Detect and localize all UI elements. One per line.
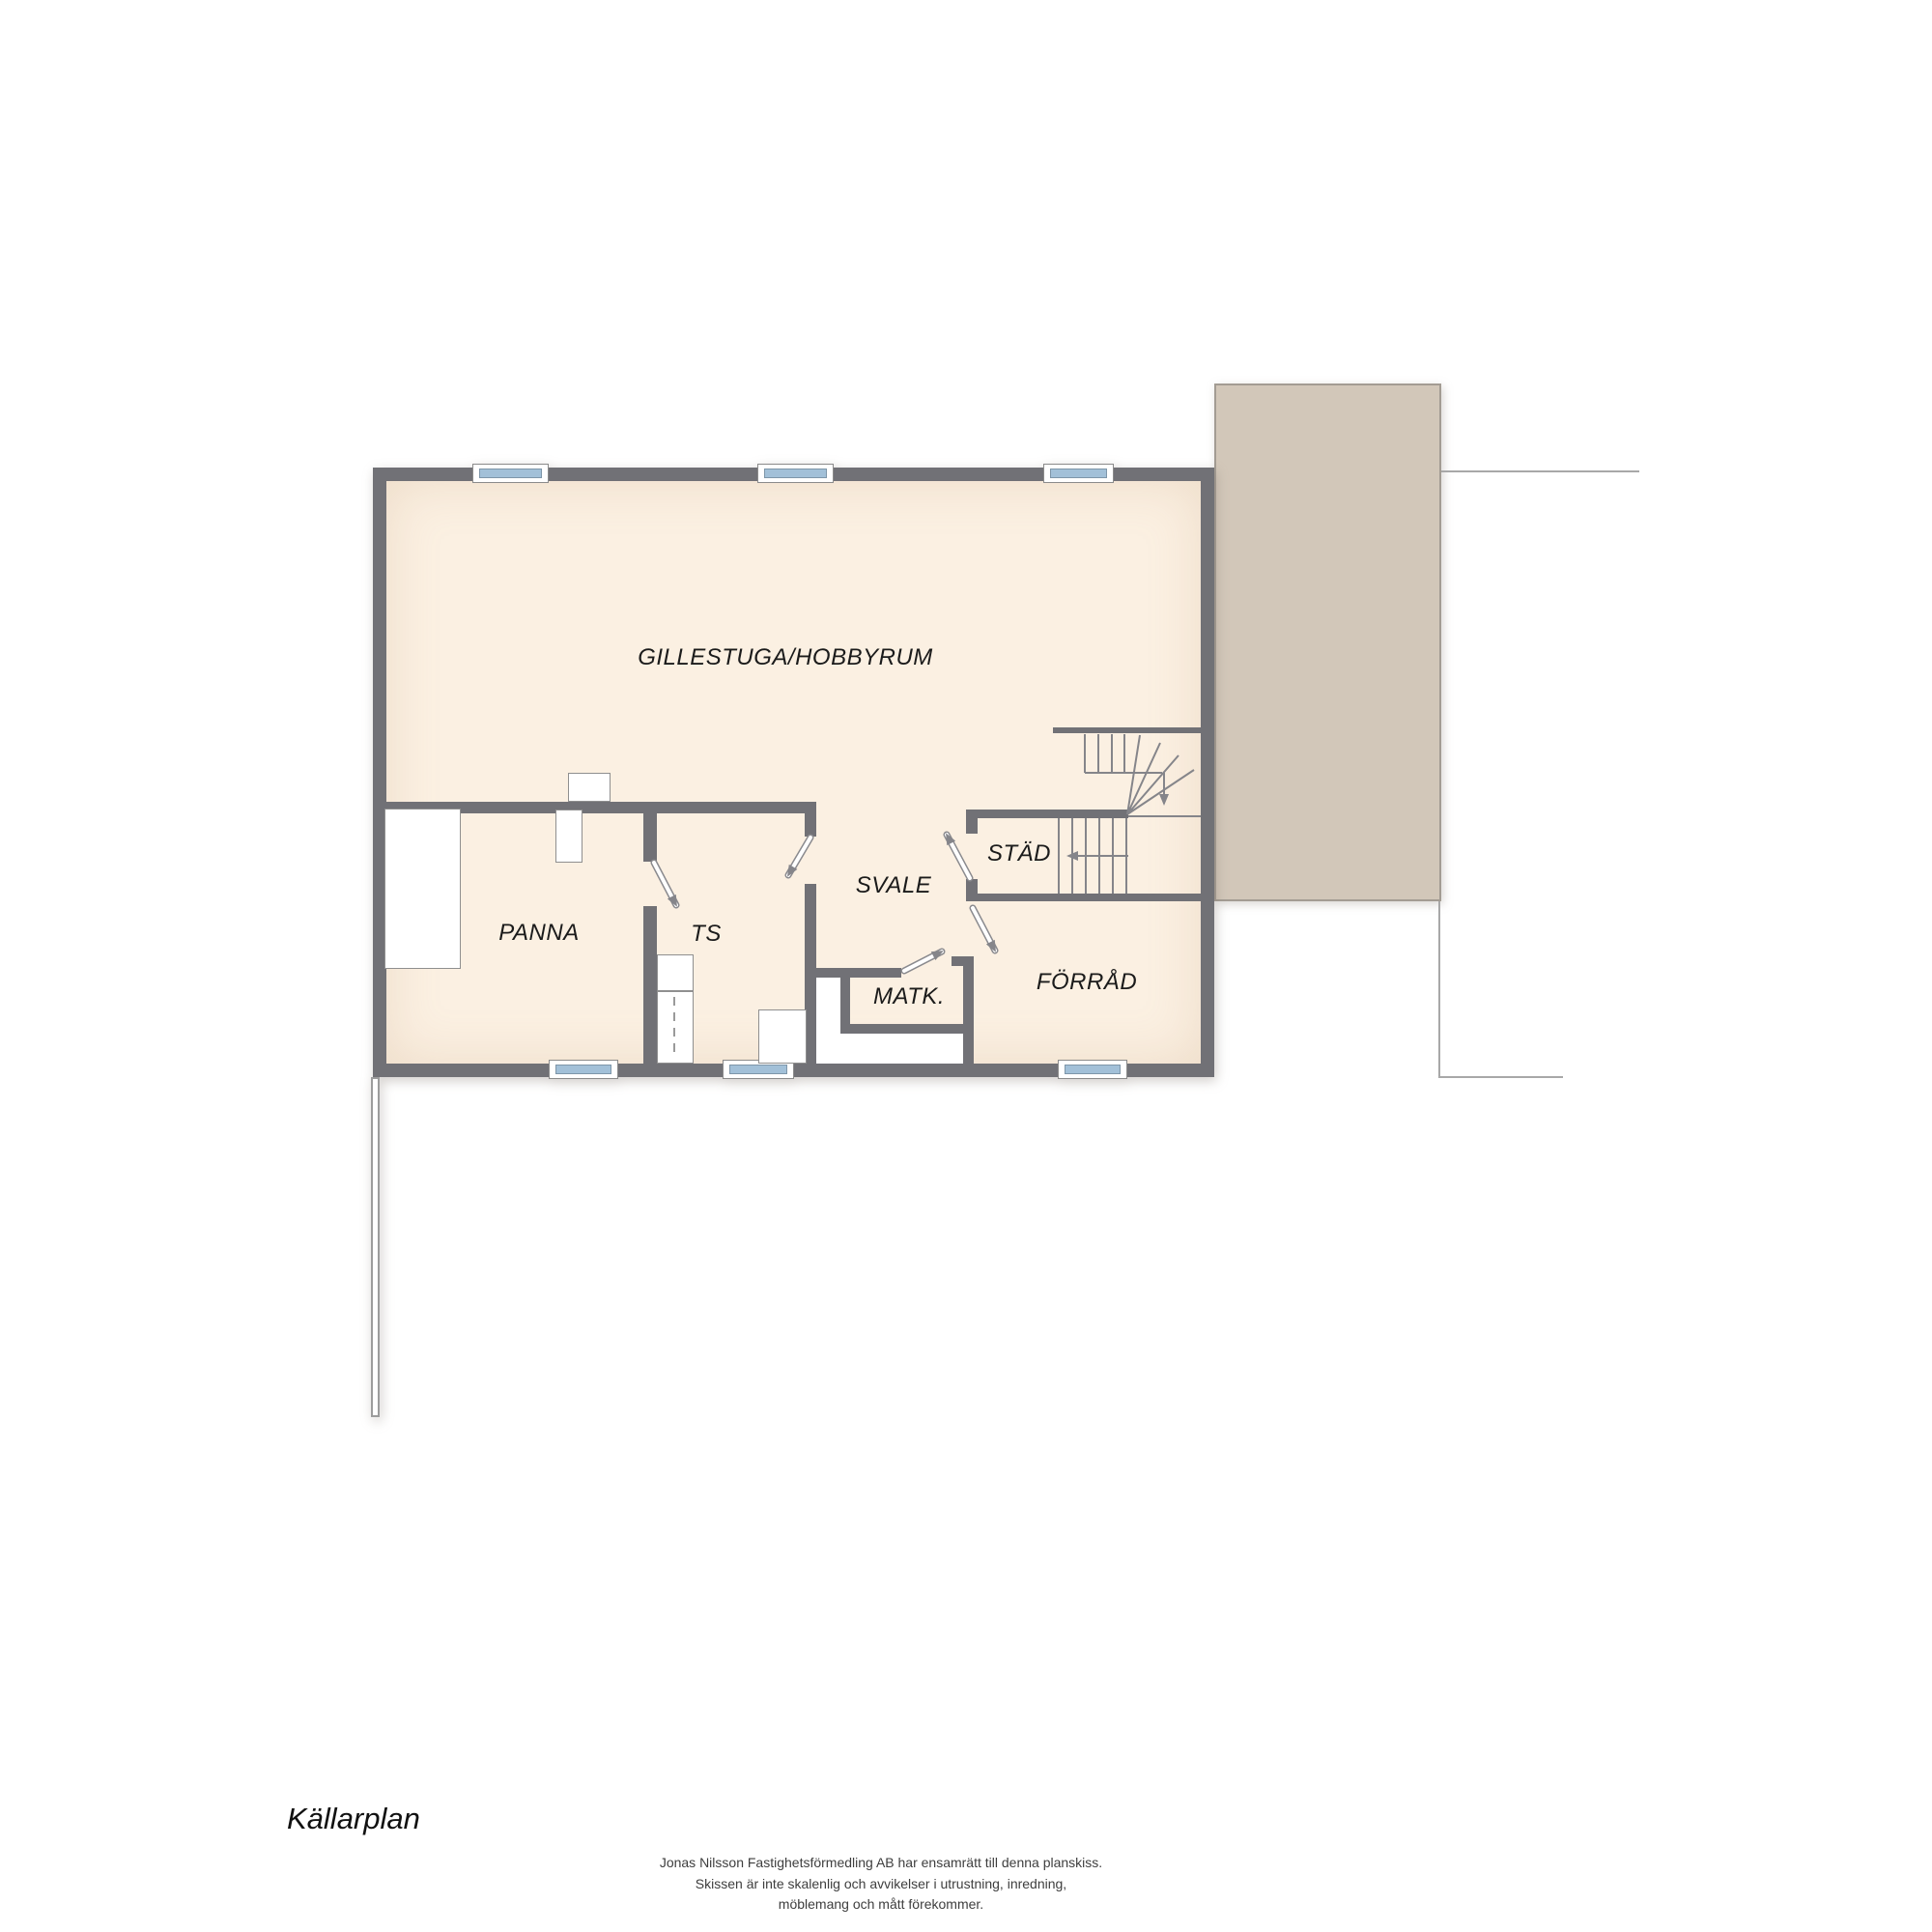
- window-glass: [479, 469, 542, 478]
- label-stad: STÄD: [987, 841, 1051, 867]
- wall-exterior-right: [1201, 468, 1214, 1077]
- dryer-fixture: [657, 991, 694, 1064]
- chimney-lower: [555, 810, 582, 863]
- wall-stair-top: [1053, 727, 1201, 733]
- window: [549, 1060, 618, 1079]
- wall-exterior-left: [373, 468, 386, 1077]
- footer-disclaimer: Jonas Nilsson Fastighetsförmedling AB ha…: [660, 1853, 1102, 1916]
- floorplan-page: GILLESTUGA/HOBBYRUM PANNA TS SVALE STÄD …: [0, 0, 1932, 1932]
- label-panna: PANNA: [498, 921, 579, 946]
- footer-line-3: möblemang och mått förekommer.: [660, 1894, 1102, 1916]
- wall-stad-forrad-bottom: [966, 894, 1201, 901]
- wall-matk-bottom: [840, 1024, 963, 1034]
- label-matk: MATK.: [873, 984, 945, 1009]
- wall-forrad-left: [963, 956, 974, 1064]
- window-glass: [1050, 469, 1107, 478]
- building: [0, 0, 1932, 1932]
- exterior-rail: [371, 1077, 380, 1417]
- footer-line-2: Skissen är inte skalenlig och avvikelser…: [660, 1874, 1102, 1895]
- window-glass: [1065, 1065, 1121, 1074]
- label-forrad: FÖRRÅD: [1037, 970, 1137, 995]
- window: [757, 464, 834, 483]
- void-area: [816, 978, 840, 1034]
- washer-fixture: [657, 954, 694, 991]
- wall-matk-top: [816, 968, 901, 978]
- window: [472, 464, 549, 483]
- label-gillestuga: GILLESTUGA/HOBBYRUM: [638, 645, 933, 670]
- window-glass: [555, 1065, 611, 1074]
- window: [1043, 464, 1114, 483]
- chimney-upper: [568, 773, 611, 802]
- wall-forrad-stub: [952, 956, 963, 966]
- window-glass: [729, 1065, 787, 1074]
- void-area: [816, 1034, 963, 1064]
- footer-line-1: Jonas Nilsson Fastighetsförmedling AB ha…: [660, 1853, 1102, 1874]
- window: [1058, 1060, 1127, 1079]
- window-glass: [764, 469, 827, 478]
- label-ts: TS: [691, 922, 722, 947]
- boiler-fixture: [384, 809, 461, 969]
- wall-stad-top: [966, 810, 1128, 818]
- label-svale: SVALE: [856, 873, 932, 898]
- wall-panna-ts-lower: [643, 906, 657, 1064]
- wall-panna-ts-upper: [643, 813, 657, 862]
- bench-fixture: [758, 1009, 807, 1064]
- wall-ts-svale-upper: [805, 813, 816, 837]
- plan-title: Källarplan: [287, 1802, 420, 1836]
